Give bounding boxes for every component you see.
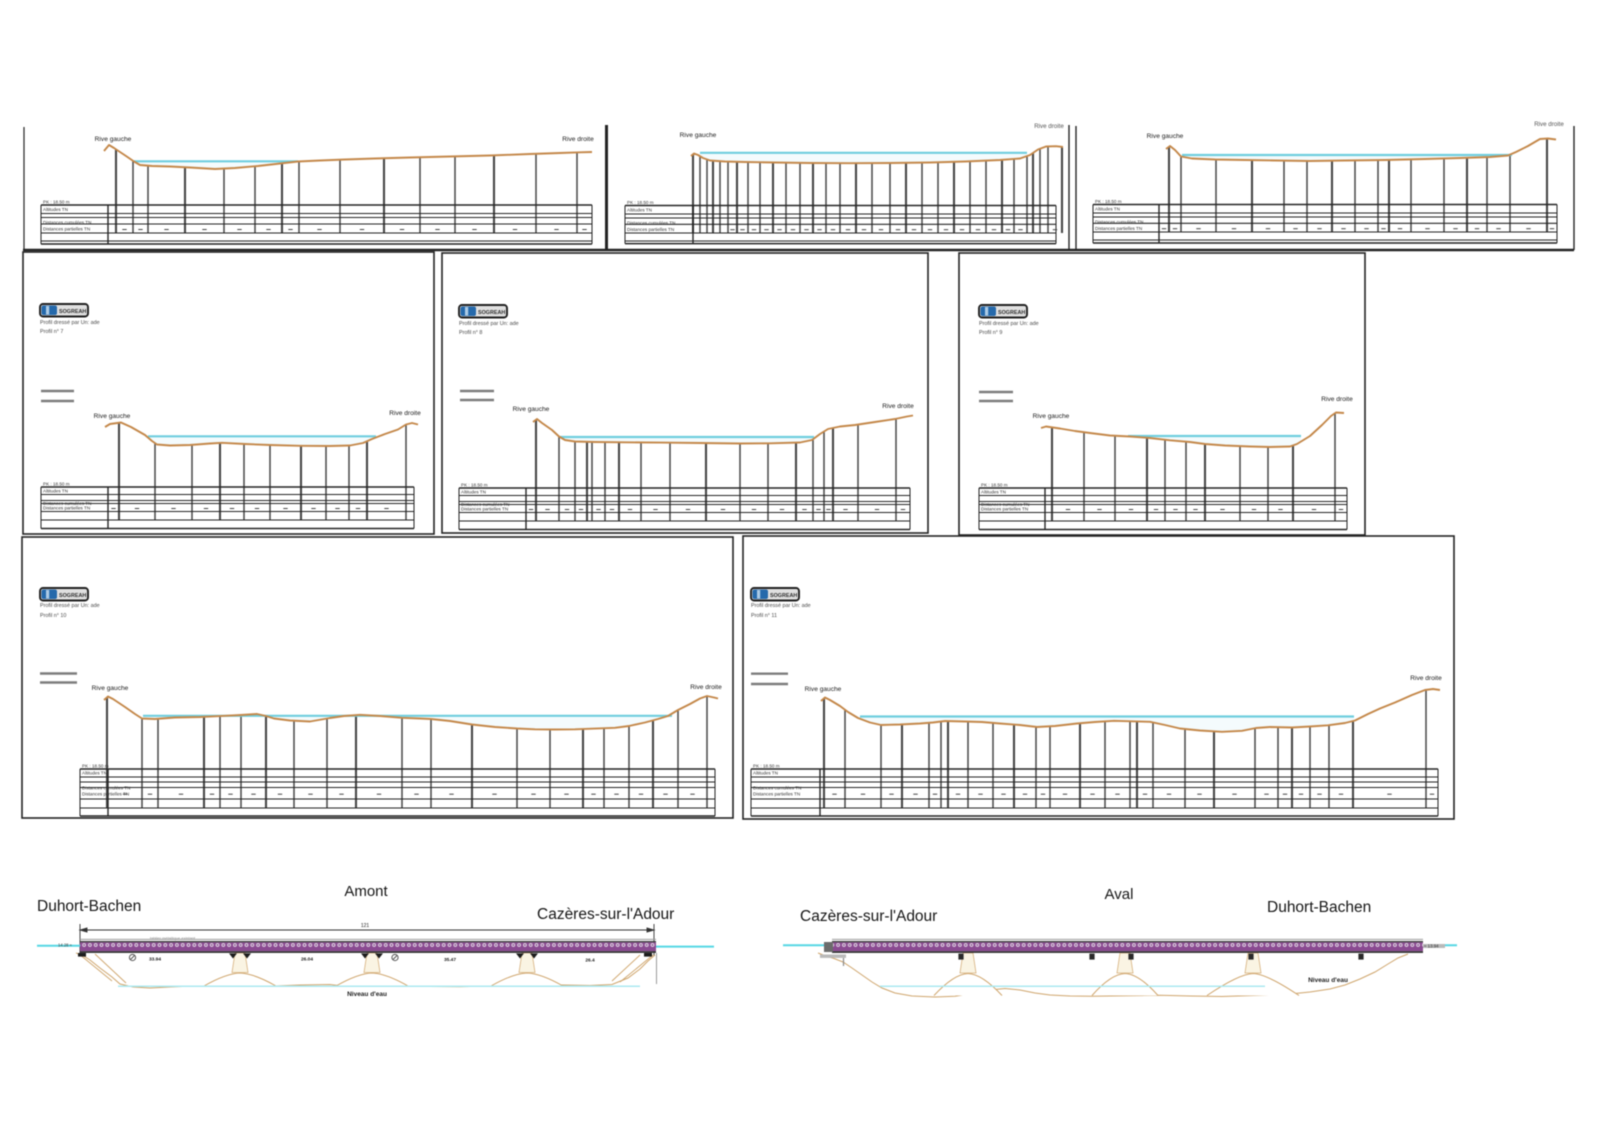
svg-text:Rive gauche: Rive gauche <box>680 132 717 139</box>
svg-text:Distances partielles TN: Distances partielles TN <box>981 507 1028 512</box>
svg-text:Altitudes TN: Altitudes TN <box>981 489 1006 494</box>
svg-text:Cazères-sur-l'Adour: Cazères-sur-l'Adour <box>800 908 937 925</box>
svg-text:Rive gauche: Rive gauche <box>92 685 129 692</box>
svg-text:Duhort-Bachen: Duhort-Bachen <box>1267 899 1371 916</box>
svg-text:Altitudes TN: Altitudes TN <box>753 771 778 776</box>
svg-text:Distances cumulées TN: Distances cumulées TN <box>627 221 675 226</box>
svg-text:35.47: 35.47 <box>444 957 456 963</box>
svg-text:Profil dressé par Un: ade: Profil dressé par Un: ade <box>979 321 1039 327</box>
svg-text:Distances partielles TN: Distances partielles TN <box>627 227 674 232</box>
svg-text:Profil n° 10: Profil n° 10 <box>40 613 66 619</box>
svg-text:Profil dressé par Un: ade: Profil dressé par Un: ade <box>751 603 811 609</box>
svg-text:≈ 13.94: ≈ 13.94 <box>1424 944 1439 949</box>
svg-text:Rive gauche: Rive gauche <box>95 136 132 143</box>
svg-text:SOGREAH: SOGREAH <box>59 593 86 599</box>
svg-text:PK : 18.50 m: PK : 18.50 m <box>461 483 488 488</box>
svg-text:Distances cumulées TN: Distances cumulées TN <box>1095 220 1143 225</box>
svg-text:PK : 18.50 m: PK : 18.50 m <box>627 200 654 205</box>
svg-text:Distances partielles TN: Distances partielles TN <box>1095 226 1142 231</box>
svg-text:Profil n° 8: Profil n° 8 <box>459 330 482 336</box>
svg-text:Cazères-sur-l'Adour: Cazères-sur-l'Adour <box>537 906 674 923</box>
svg-text:Altitudes TN: Altitudes TN <box>43 207 68 212</box>
svg-text:Distances partielles TN: Distances partielles TN <box>82 792 129 797</box>
svg-text:PK : 18.50 m: PK : 18.50 m <box>753 764 780 769</box>
svg-text:Rive droite: Rive droite <box>882 403 914 410</box>
svg-text:Distances cumulées TN: Distances cumulées TN <box>43 220 91 225</box>
svg-text:Rive droite: Rive droite <box>690 684 722 691</box>
svg-text:26.4: 26.4 <box>585 958 595 964</box>
svg-text:Distances partielles TN: Distances partielles TN <box>43 506 90 511</box>
svg-text:Altitudes TN: Altitudes TN <box>461 489 486 494</box>
svg-text:Aval: Aval <box>1105 886 1134 903</box>
svg-text:Profil dressé par Un: ade: Profil dressé par Un: ade <box>40 320 100 326</box>
svg-text:PK : 18.50 m: PK : 18.50 m <box>43 482 70 487</box>
svg-text:Distances partielles TN: Distances partielles TN <box>753 792 800 797</box>
svg-text:Altitudes TN: Altitudes TN <box>1095 206 1120 211</box>
svg-text:Profil dressé par Un: ade: Profil dressé par Un: ade <box>459 321 519 327</box>
svg-text:SOGREAH: SOGREAH <box>478 310 505 316</box>
svg-text:Rive gauche: Rive gauche <box>513 406 550 413</box>
svg-text:Profil n° 7: Profil n° 7 <box>40 329 63 335</box>
svg-text:Profil dressé par Un: ade: Profil dressé par Un: ade <box>40 603 100 609</box>
svg-text:Rive gauche: Rive gauche <box>805 686 842 693</box>
svg-text:Niveau d'eau: Niveau d'eau <box>1308 977 1348 984</box>
svg-text:SOGREAH: SOGREAH <box>770 593 797 599</box>
svg-text:Niveau d'eau: Niveau d'eau <box>347 991 387 998</box>
svg-text:Profil n° 11: Profil n° 11 <box>751 613 777 619</box>
svg-text:Altitudes TN: Altitudes TN <box>627 207 652 212</box>
svg-text:PK : 18.50 m: PK : 18.50 m <box>1095 199 1122 204</box>
svg-text:Rive gauche: Rive gauche <box>1033 413 1070 420</box>
svg-text:Altitudes TN: Altitudes TN <box>82 771 107 776</box>
svg-text:PK : 18.50 m: PK : 18.50 m <box>981 483 1008 488</box>
svg-text:PK : 18.50 m: PK : 18.50 m <box>43 200 70 205</box>
svg-text:121: 121 <box>361 923 370 929</box>
svg-text:SOGREAH: SOGREAH <box>59 309 86 315</box>
svg-text:Distances partielles TN: Distances partielles TN <box>461 507 508 512</box>
svg-text:Rive droite: Rive droite <box>562 136 594 143</box>
svg-text:Rive droite: Rive droite <box>1034 123 1064 130</box>
svg-text:Rive droite: Rive droite <box>1321 396 1353 403</box>
svg-text:SOGREAH: SOGREAH <box>998 310 1025 316</box>
svg-text:Distances cumulées TN: Distances cumulées TN <box>82 786 130 791</box>
svg-text:Rive gauche: Rive gauche <box>94 413 131 420</box>
svg-text:Duhort-Bachen: Duhort-Bachen <box>37 898 141 915</box>
svg-text:Rive gauche: Rive gauche <box>1147 133 1184 140</box>
svg-text:Profil n° 9: Profil n° 9 <box>979 330 1002 336</box>
svg-text:Rive droite: Rive droite <box>1534 121 1564 128</box>
svg-text:Distances partielles TN: Distances partielles TN <box>43 227 90 232</box>
svg-text:14.28 ≈: 14.28 ≈ <box>58 943 73 948</box>
svg-text:Amont: Amont <box>344 883 388 900</box>
svg-text:PK : 18.50 m: PK : 18.50 m <box>82 764 109 769</box>
svg-text:Altitudes TN: Altitudes TN <box>43 488 68 493</box>
svg-text:Rive droite: Rive droite <box>389 410 421 417</box>
svg-text:26.04: 26.04 <box>301 957 313 963</box>
svg-text:Rive droite: Rive droite <box>1410 675 1442 682</box>
svg-text:Distances cumulées TN: Distances cumulées TN <box>753 786 801 791</box>
svg-text:33.94: 33.94 <box>149 957 161 963</box>
